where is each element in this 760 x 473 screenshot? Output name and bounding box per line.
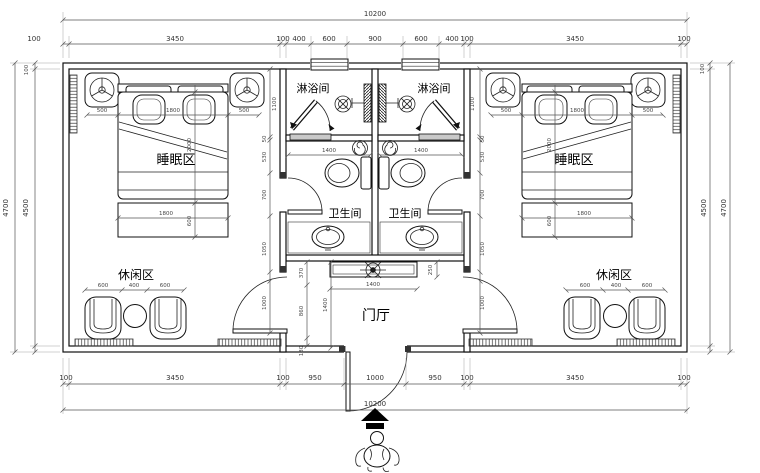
- dim-top: 100: [276, 35, 289, 43]
- dim-foyer: 370: [299, 267, 305, 278]
- dim-bed: 500: [97, 108, 108, 114]
- dim-bed: 1800: [570, 108, 584, 114]
- armchair: [85, 297, 121, 339]
- dim-leisure: 400: [611, 283, 622, 289]
- dim-right-wall: 100: [700, 63, 706, 74]
- dim-bottom: 950: [308, 374, 321, 382]
- dim-chain: 530: [262, 151, 268, 162]
- shower-threshold: [290, 134, 331, 140]
- room-label-sleep-left: 睡眠区: [156, 153, 195, 168]
- dim-chain: 530: [480, 151, 486, 162]
- floor-grille: [218, 339, 281, 346]
- dim-bottom: 950: [428, 374, 441, 382]
- floor-grille: [75, 339, 133, 346]
- ceiling-device-icon: [85, 73, 119, 107]
- dim-chain: 1050: [262, 242, 268, 256]
- dim-left-wall: 100: [24, 64, 30, 75]
- dim-top: 600: [414, 35, 427, 43]
- dim-top: 600: [322, 35, 335, 43]
- dim-bench: 1800: [577, 211, 591, 217]
- dim-chain: 50: [480, 135, 486, 142]
- dim-bench: 600: [547, 215, 553, 226]
- dim-door: 1000: [262, 296, 268, 310]
- dim-bottom: 100: [460, 374, 473, 382]
- dim-bed: 2000: [187, 138, 193, 152]
- dim-chain: 700: [262, 189, 268, 200]
- dim-left-inner: 4500: [22, 199, 30, 217]
- dim-top: 3450: [166, 35, 184, 43]
- dim-bed: 2000: [547, 138, 553, 152]
- room-label-shower-left: 淋浴间: [297, 82, 330, 95]
- dim-bench: 600: [187, 215, 193, 226]
- dim-chain: 50: [262, 135, 268, 142]
- dim-foyer: 1400: [323, 298, 329, 312]
- dim-leisure: 600: [98, 283, 109, 289]
- dim-bed: 500: [501, 108, 512, 114]
- dim-bed: 500: [239, 108, 250, 114]
- room-label-leisure-right: 休闲区: [596, 268, 632, 282]
- dim-top: 100: [27, 35, 40, 43]
- dim-bottom: 100: [677, 374, 690, 382]
- person-figure: [356, 432, 399, 472]
- dim-chain: 1100: [470, 97, 476, 111]
- room-label-foyer: 门厅: [362, 308, 390, 324]
- round-table: [124, 305, 147, 328]
- dim-bed: 1800: [166, 108, 180, 114]
- floor-plan-drawing: 10200 10200 100 3450 100 400 600 900 600…: [0, 0, 760, 473]
- dim-leisure: 600: [160, 283, 171, 289]
- shower-fixture: [364, 84, 371, 122]
- dim-top: 400: [292, 35, 305, 43]
- dim-foyer: 860: [299, 305, 305, 316]
- dim-leisure: 600: [580, 283, 591, 289]
- floor-plan: 10200 10200 100 3450 100 400 600 900 600…: [0, 0, 760, 473]
- dim-leisure: 400: [129, 283, 140, 289]
- dim-top-total: 10200: [364, 10, 386, 18]
- dim-left-outer: 4700: [2, 199, 10, 217]
- entrance-arrow-icon: [361, 408, 389, 429]
- dim-cabinet: 1400: [366, 282, 380, 288]
- dim-shower: 1400: [322, 148, 336, 154]
- entrance-opening: [344, 344, 407, 354]
- dim-bottom: 100: [59, 374, 72, 382]
- dim-cabinet-gap: 250: [428, 264, 434, 275]
- dim-chain: 700: [480, 189, 486, 200]
- dim-top: 100: [460, 35, 473, 43]
- dim-bottom-total: 10200: [364, 400, 386, 408]
- dim-door: 1000: [480, 296, 486, 310]
- dim-top: 3450: [566, 35, 584, 43]
- room-label-toilet-right: 卫生间: [389, 206, 422, 220]
- dim-top: 100: [677, 35, 690, 43]
- dim-top: 400: [445, 35, 458, 43]
- dim-bottom: 3450: [166, 374, 184, 382]
- dim-bottom: 1000: [366, 374, 384, 382]
- dim-right-inner: 4500: [700, 199, 708, 217]
- dim-bench: 1800: [159, 211, 173, 217]
- dim-right-outer: 4700: [720, 199, 728, 217]
- room-label-leisure-left: 休闲区: [118, 268, 154, 282]
- dim-leisure: 600: [642, 283, 653, 289]
- window: [310, 59, 349, 70]
- room-label-toilet-left: 卫生间: [329, 206, 362, 220]
- dim-chain: 1100: [272, 97, 278, 111]
- wall-grille: [70, 75, 77, 133]
- dim-shower: 1400: [414, 148, 428, 154]
- dim-chain: 1050: [480, 242, 486, 256]
- ceiling-device-icon: [230, 73, 264, 107]
- room-label-shower-right: 淋浴间: [418, 82, 451, 95]
- dim-bottom: 100: [276, 374, 289, 382]
- armchair: [150, 297, 186, 339]
- toilet: [325, 157, 371, 189]
- dim-foyer: 130: [299, 345, 305, 356]
- dim-bottom: 3450: [566, 374, 584, 382]
- dim-bed: 500: [643, 108, 654, 114]
- dim-top: 900: [368, 35, 381, 43]
- room-label-sleep-right: 睡眠区: [554, 153, 593, 168]
